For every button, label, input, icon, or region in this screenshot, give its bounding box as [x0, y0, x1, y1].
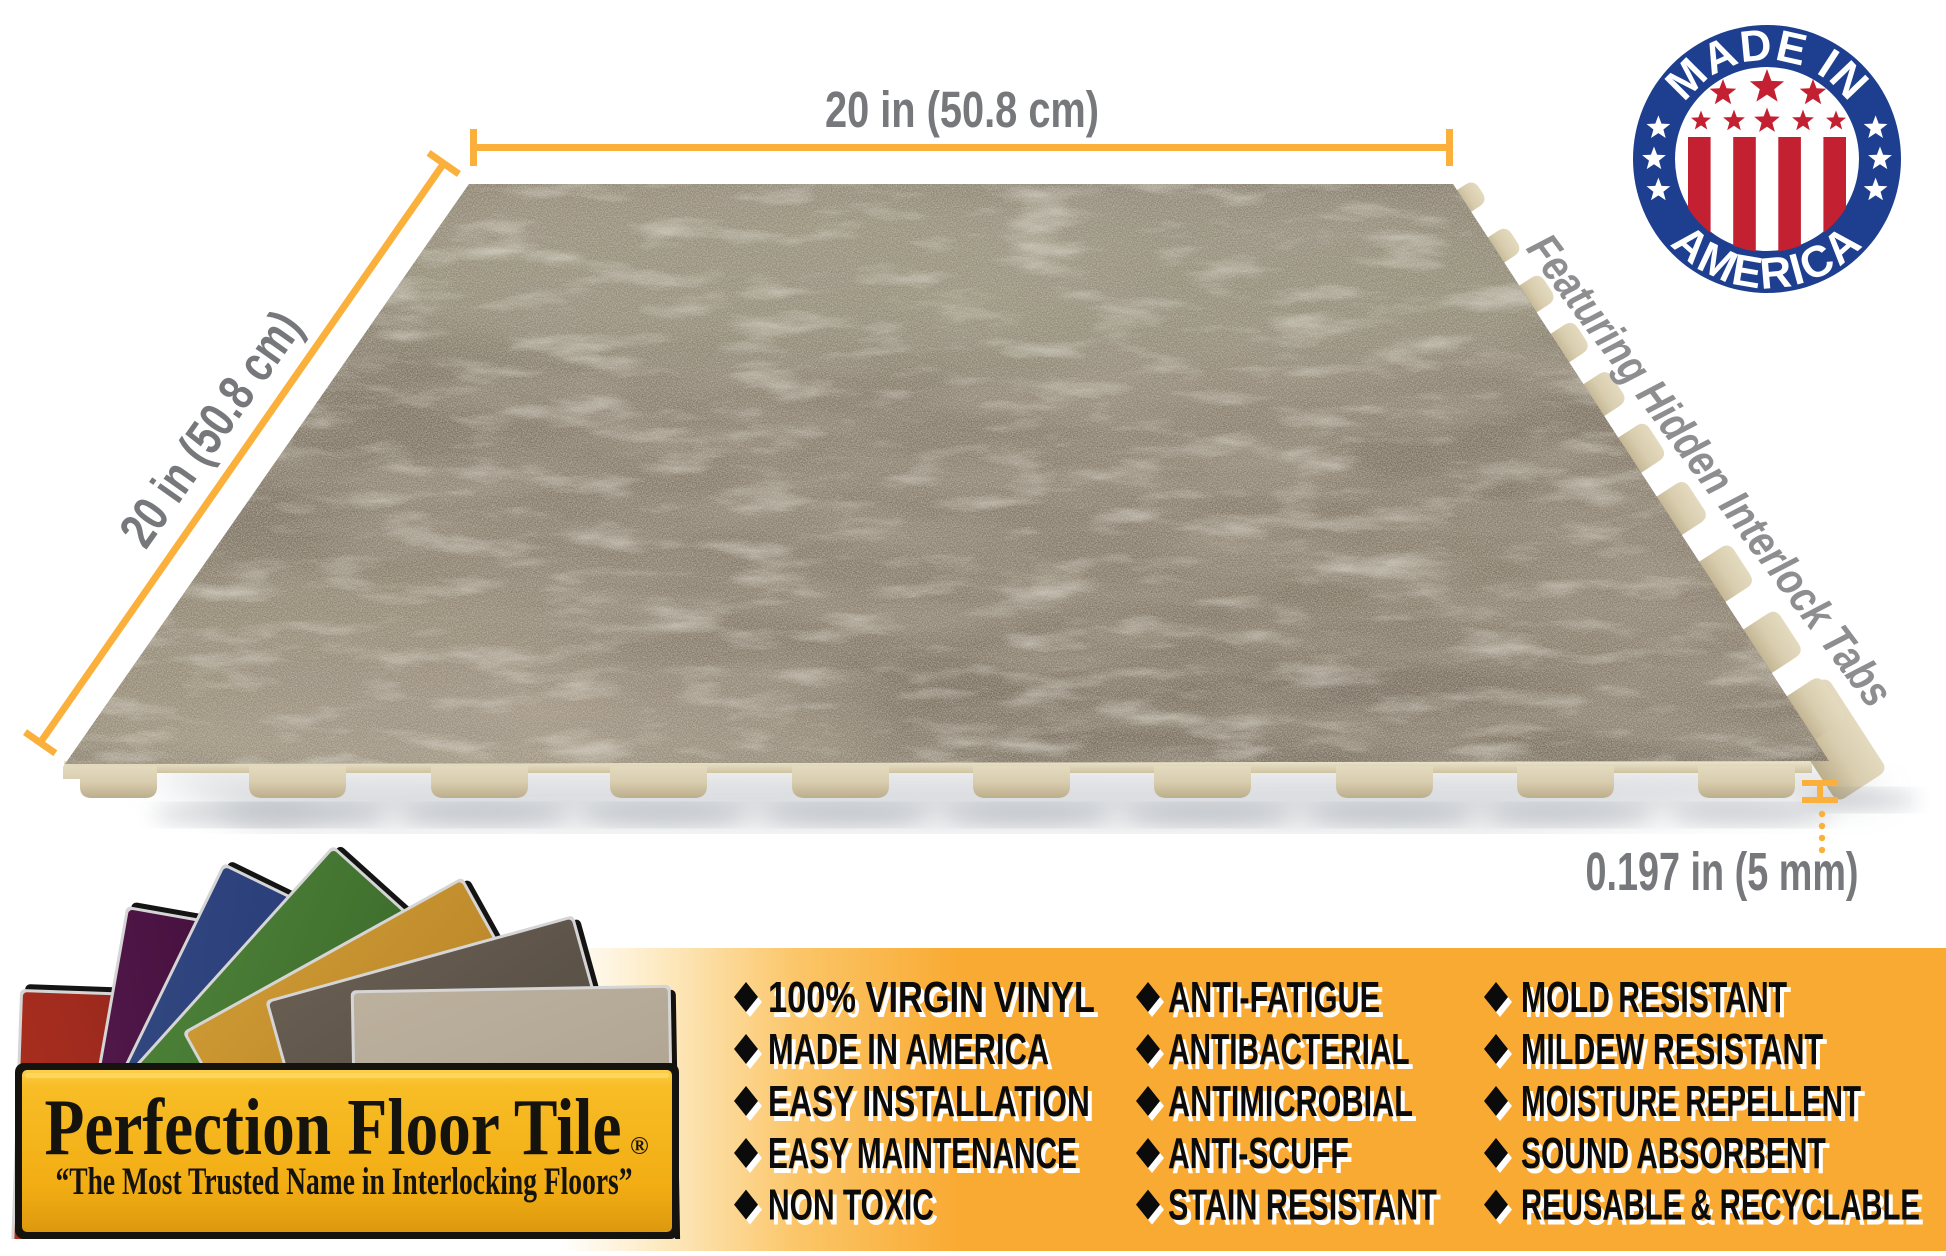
svg-text:ANTIMICROBIAL: ANTIMICROBIAL [1168, 1077, 1413, 1126]
svg-text:100% VIRGIN VINYL: 100% VIRGIN VINYL [768, 974, 1095, 1022]
svg-text:0.197 in (5 mm): 0.197 in (5 mm) [1585, 841, 1858, 901]
svg-text:“The Most Trusted Name in Inte: “The Most Trusted Name in Interlocking F… [55, 1160, 632, 1203]
svg-text:ANTIBACTERIAL: ANTIBACTERIAL [1168, 1024, 1410, 1073]
svg-text:STAIN RESISTANT: STAIN RESISTANT [1168, 1180, 1437, 1229]
svg-text:ANTI-FATIGUE: ANTI-FATIGUE [1168, 973, 1380, 1022]
svg-text:MADE IN AMERICA: MADE IN AMERICA [768, 1025, 1049, 1073]
svg-text:20 in (50.8 cm): 20 in (50.8 cm) [825, 81, 1099, 138]
svg-text:Perfection Floor Tile: Perfection Floor Tile [44, 1081, 621, 1171]
svg-text:ANTI-SCUFF: ANTI-SCUFF [1168, 1128, 1349, 1177]
svg-text:EASY INSTALLATION: EASY INSTALLATION [768, 1078, 1090, 1126]
svg-text:®: ® [630, 1133, 649, 1160]
svg-text:REUSABLE & RECYCLABLE: REUSABLE & RECYCLABLE [1521, 1180, 1920, 1229]
svg-text:MILDEW RESISTANT: MILDEW RESISTANT [1521, 1025, 1823, 1074]
svg-text:SOUND ABSORBENT: SOUND ABSORBENT [1521, 1128, 1826, 1177]
svg-text:MOISTURE REPELLENT: MOISTURE REPELLENT [1521, 1076, 1861, 1125]
svg-text:MOLD RESISTANT: MOLD RESISTANT [1521, 972, 1787, 1021]
svg-text:EASY MAINTENANCE: EASY MAINTENANCE [768, 1128, 1077, 1177]
svg-text:NON TOXIC: NON TOXIC [768, 1180, 934, 1229]
